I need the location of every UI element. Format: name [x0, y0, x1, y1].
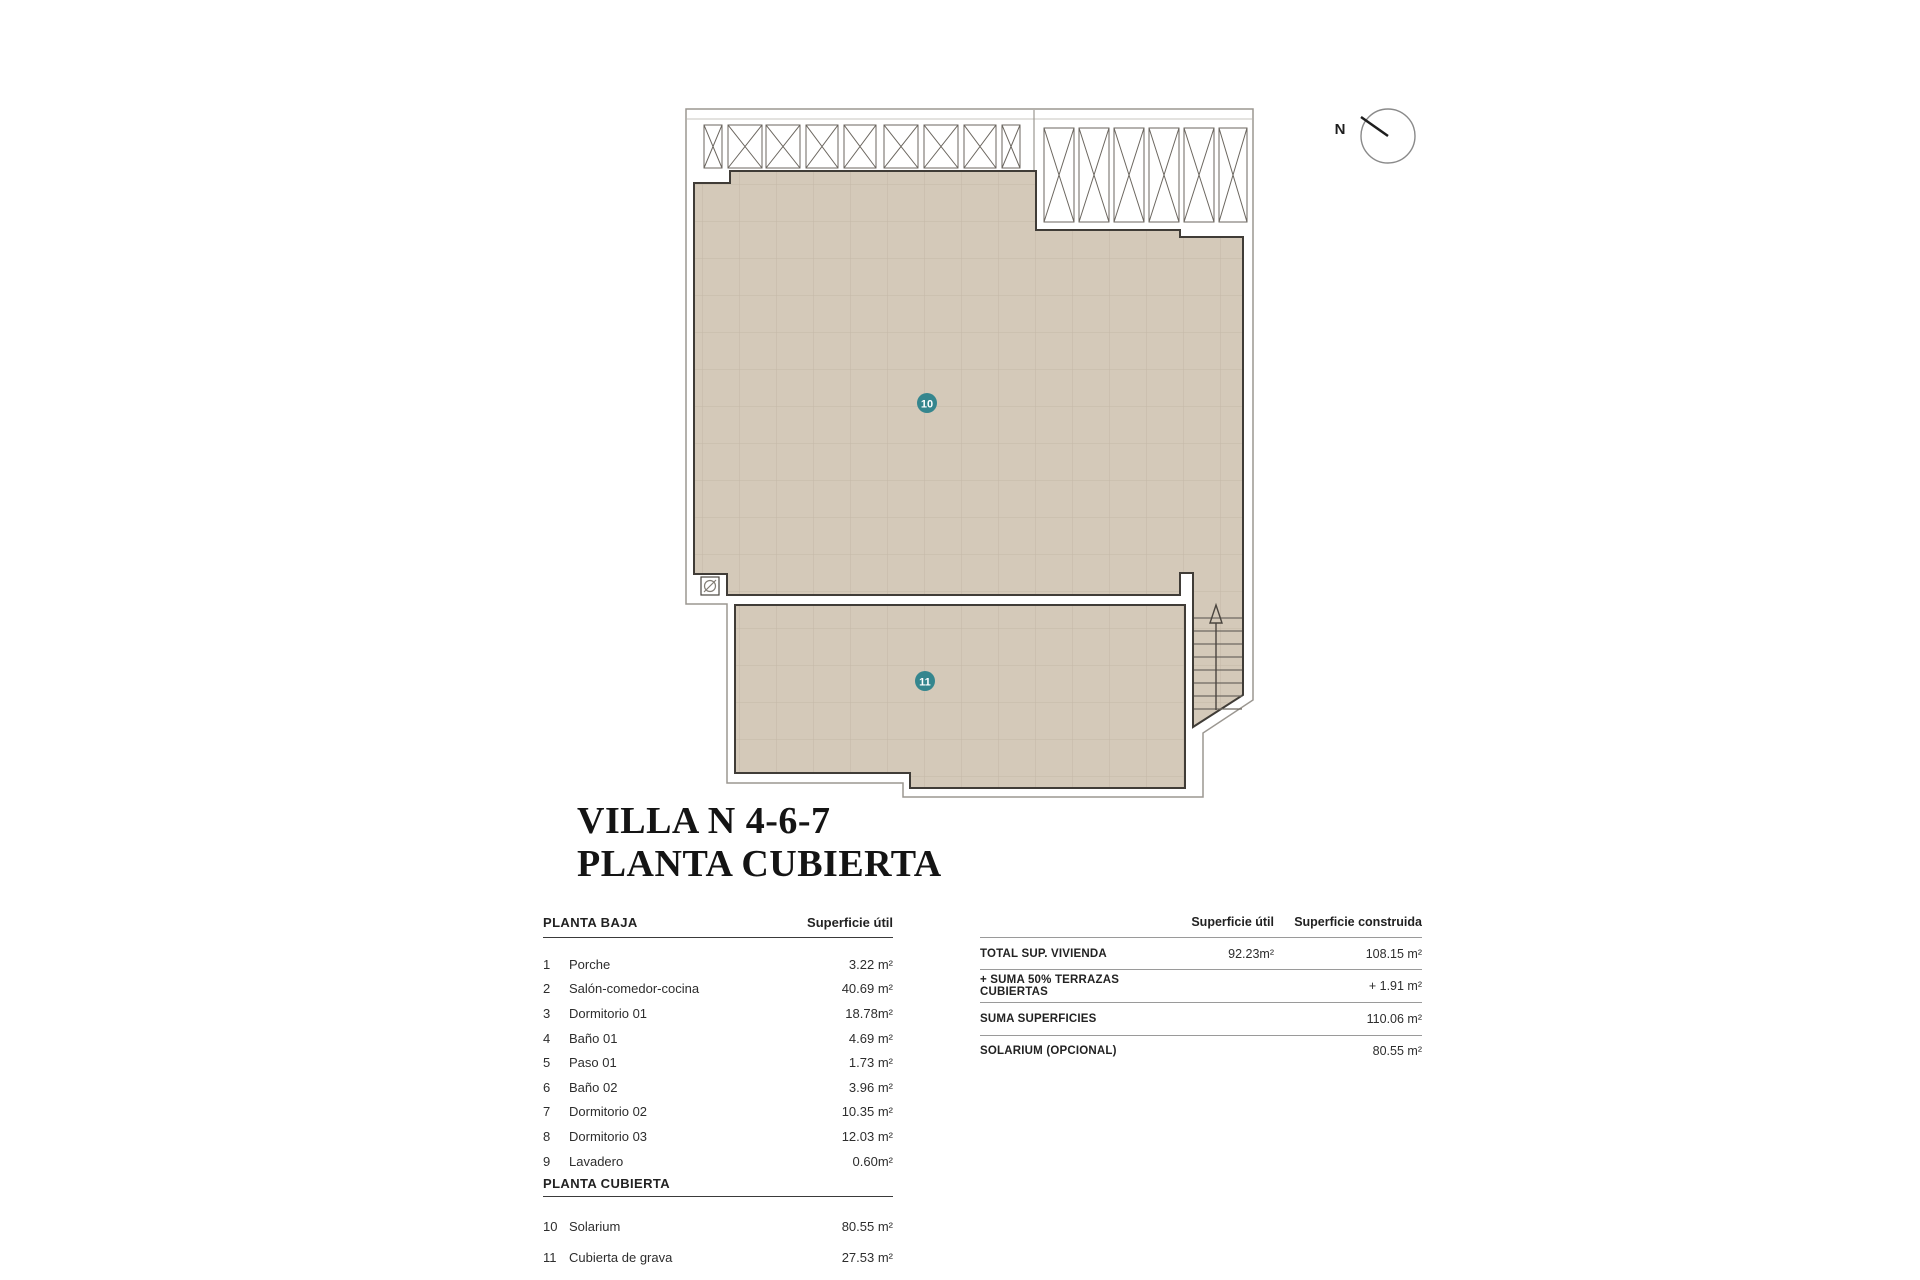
- badge-10-label: 10: [921, 399, 933, 411]
- summary-header-row: Superficie útil Superficie construida: [980, 915, 1422, 938]
- planta-cubierta-header-row: PLANTA CUBIERTA: [543, 1176, 893, 1197]
- summary-row-total-vivienda: TOTAL SUP. VIVIENDA 92.23m² 108.15 m²: [980, 938, 1422, 970]
- north-label: N: [1335, 121, 1346, 138]
- table-row: 11Cubierta de grava27.53 m²: [543, 1242, 893, 1273]
- table-row: 8Dormitorio 0312.03 m²: [543, 1124, 893, 1149]
- summary-col-util-header: Superficie útil: [1179, 915, 1274, 929]
- room-areas-table: PLANTA BAJA Superficie útil 1Porche3.22 …: [543, 915, 893, 1273]
- planta-baja-section-title: PLANTA BAJA: [543, 915, 638, 930]
- table-row: 1Porche3.22 m²: [543, 952, 893, 977]
- surface-summary-table: Superficie útil Superficie construida TO…: [980, 915, 1422, 1066]
- floor-plan-drawing: 10 11 N: [0, 0, 1920, 1280]
- planta-baja-header-row: PLANTA BAJA Superficie útil: [543, 915, 893, 938]
- table-row: 9Lavadero0.60m²: [543, 1149, 893, 1174]
- table-row: 7Dormitorio 0210.35 m²: [543, 1100, 893, 1125]
- table-row: 3Dormitorio 0118.78m²: [543, 1001, 893, 1026]
- table-row: 2Salón-comedor-cocina40.69 m²: [543, 977, 893, 1002]
- planta-cubierta-section-title: PLANTA CUBIERTA: [543, 1176, 670, 1191]
- planta-baja-rows: 1Porche3.22 m² 2Salón-comedor-cocina40.6…: [543, 952, 893, 1173]
- summary-row-solarium-opcional: SOLARIUM (OPCIONAL) 80.55 m²: [980, 1036, 1422, 1066]
- area-badge-gravel-roof: 11: [915, 671, 935, 691]
- table-row: 6Baño 023.96 m²: [543, 1075, 893, 1100]
- drain-symbol: [701, 577, 719, 595]
- summary-col-construida-header: Superficie construida: [1282, 915, 1422, 929]
- planta-cubierta-rows: 10Solarium80.55 m² 11Cubierta de grava27…: [543, 1211, 893, 1273]
- area-badge-solarium: 10: [917, 393, 937, 413]
- table-row: 5Paso 011.73 m²: [543, 1050, 893, 1075]
- table-row: 4Baño 014.69 m²: [543, 1026, 893, 1051]
- table-row: 10Solarium80.55 m²: [543, 1211, 893, 1242]
- superficie-util-column-header: Superficie útil: [807, 915, 893, 930]
- summary-row-terrazas: + SUMA 50% TERRAZAS CUBIERTAS + 1.91 m²: [980, 970, 1422, 1003]
- summary-row-suma-superficies: SUMA SUPERFICIES 110.06 m²: [980, 1003, 1422, 1036]
- gravel-roof-surface: [735, 605, 1185, 788]
- plan-title-line1: VILLA N 4-6-7: [577, 800, 942, 843]
- plan-title: VILLA N 4-6-7 PLANTA CUBIERTA: [577, 800, 942, 886]
- north-compass-icon: N: [1335, 109, 1415, 163]
- plan-title-line2: PLANTA CUBIERTA: [577, 843, 942, 886]
- pergola-beams-left: [704, 125, 1020, 168]
- badge-11-label: 11: [919, 677, 931, 689]
